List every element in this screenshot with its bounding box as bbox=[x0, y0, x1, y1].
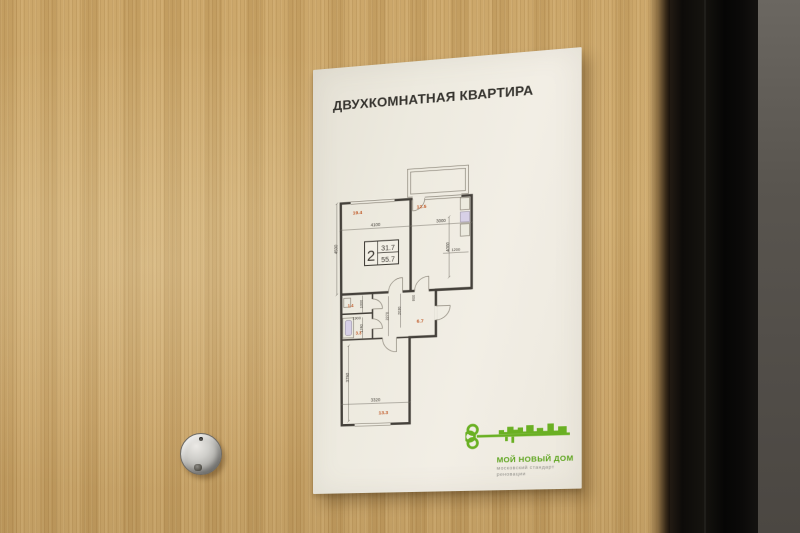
door-edge-shadow bbox=[648, 0, 670, 533]
area-bedroom: 12.5 bbox=[417, 204, 427, 211]
peephole-pivot bbox=[194, 464, 202, 471]
poster-title: ДВУХКОМНАТНАЯ КВАРТИРА bbox=[333, 82, 533, 113]
dim-living-depth: 4500 bbox=[333, 244, 338, 254]
brand-logo: МОЙ НОВЫЙ ДОМ московский стандарт ренова… bbox=[465, 418, 575, 480]
label-rooms-count: 2 bbox=[367, 248, 375, 265]
wall-gray-strip bbox=[758, 0, 800, 533]
floor-plan: 4100 3000 4500 4000 1200 1000 1900 1740 … bbox=[333, 159, 474, 432]
dim-kitchen-depth: 3790 bbox=[345, 372, 350, 382]
windows bbox=[351, 193, 462, 427]
dim-hall-depth-a: 2270 bbox=[385, 312, 389, 321]
balcony bbox=[408, 165, 469, 197]
dim-kitchen-width: 3320 bbox=[371, 397, 381, 402]
dimension-lines bbox=[336, 194, 473, 423]
apartment-label-box: 2 31.7 55.7 bbox=[365, 240, 399, 266]
dim-wc-depth: 1000 bbox=[359, 300, 363, 309]
dim-bath-width: 1900 bbox=[352, 316, 360, 320]
label-total-area: 55.7 bbox=[381, 257, 395, 265]
brand-tagline-line2: реновации bbox=[497, 471, 576, 479]
brand-tagline: московский стандарт реновации bbox=[497, 465, 576, 480]
label-living-area: 31.7 bbox=[381, 245, 395, 253]
peephole-screw bbox=[199, 437, 203, 441]
dim-jog-width: 600 bbox=[412, 295, 416, 302]
dim-bedroom-width: 3000 bbox=[436, 218, 446, 224]
door-frame-dark-strip bbox=[670, 0, 758, 533]
dim-living-width: 4100 bbox=[371, 222, 381, 228]
area-wc: 1.4 bbox=[348, 303, 354, 308]
area-hallway: 6.7 bbox=[417, 318, 424, 324]
dim-hall-depth-b: 2030 bbox=[397, 306, 401, 315]
peephole bbox=[180, 433, 222, 475]
area-bathroom: 3.3 bbox=[356, 330, 362, 335]
fixtures bbox=[343, 197, 470, 338]
apartment-plan-poster: ДВУХКОМНАТНАЯ КВАРТИРА bbox=[313, 47, 582, 494]
room-area-labels: 19.4 12.5 1.4 3.3 6.7 13.3 bbox=[348, 204, 427, 417]
area-kitchen: 13.3 bbox=[379, 410, 389, 416]
dim-bedroom-depth: 4000 bbox=[445, 241, 450, 252]
outer-walls bbox=[341, 195, 472, 425]
key-city-logo-icon bbox=[465, 418, 575, 450]
dim-niche-width: 1200 bbox=[451, 248, 460, 253]
area-living-room: 19.4 bbox=[353, 210, 363, 217]
brand-name: МОЙ НОВЫЙ ДОМ bbox=[497, 453, 576, 464]
